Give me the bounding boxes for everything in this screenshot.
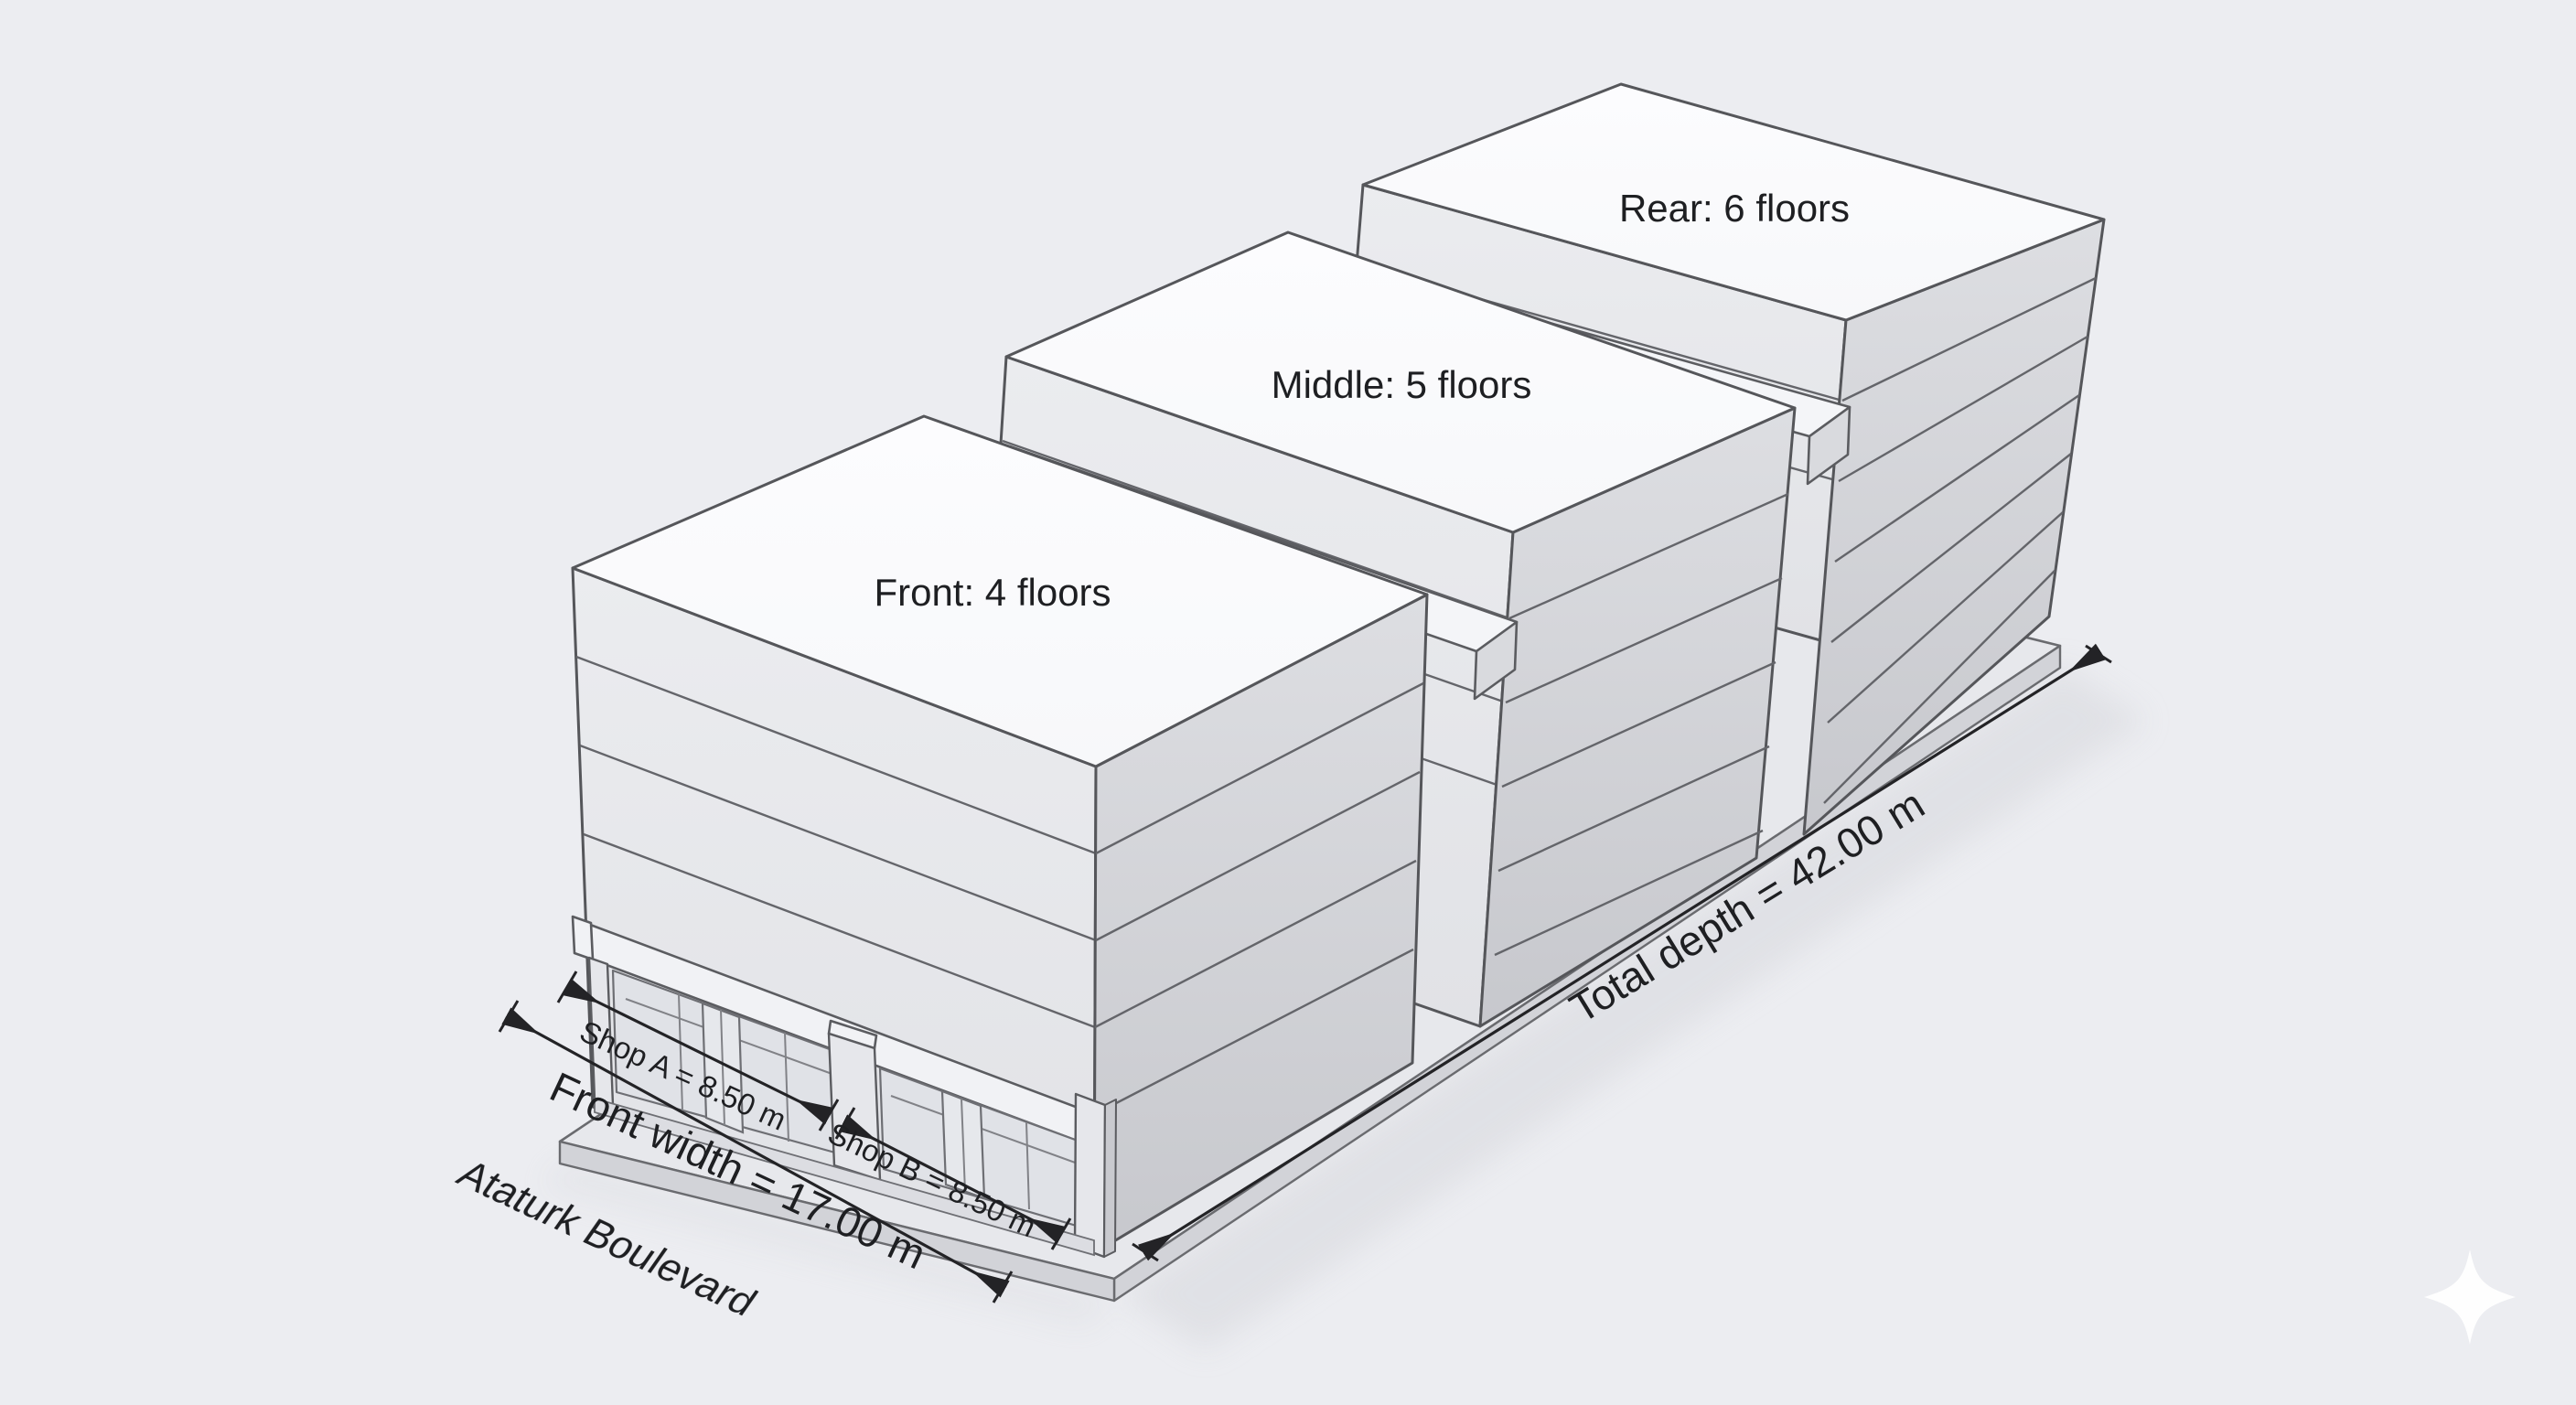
shopfront-right-pillar bbox=[1075, 1094, 1105, 1257]
rear-building-label: Rear: 6 floors bbox=[1619, 187, 1850, 230]
middle-building-label: Middle: 5 floors bbox=[1272, 363, 1532, 406]
front-building-label: Front: 4 floors bbox=[874, 571, 1111, 614]
site-massing-diagram: Shop A = 8.50 m Shop B = 8.50 m Front wi… bbox=[0, 0, 2576, 1405]
diagram-stage: Shop A = 8.50 m Shop B = 8.50 m Front wi… bbox=[0, 0, 2576, 1405]
